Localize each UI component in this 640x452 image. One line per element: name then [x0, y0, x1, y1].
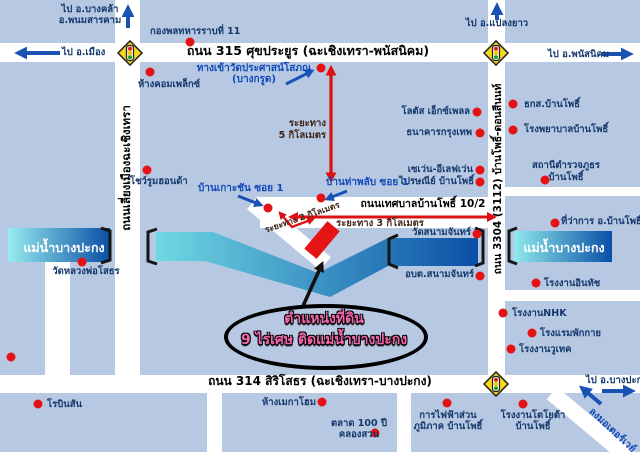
- poi-dot-road314-west: [7, 353, 16, 362]
- poi-megahome: ห้างเมกาโฮม: [258, 397, 316, 408]
- arrow-thaphlap: [327, 191, 347, 199]
- map-canvas: ไป อ.บางคล้า อ.พนมสารคาม ไป อ.เมือง กองพ…: [0, 0, 640, 452]
- poi-dot-seven: [476, 166, 485, 175]
- poi-dot-district: [551, 219, 560, 228]
- direction-bangkhla: ไป อ.บางคล้า อ.พนมสารคาม: [58, 4, 122, 26]
- poi-dot-hospital: [509, 126, 518, 135]
- poi-robinson: โรบินสัน: [47, 399, 82, 410]
- road-label-bypass: ถนนเลี่ยงเมืองฉะเชิงเทรา: [118, 48, 136, 288]
- poi-dot-watsanamchan: [473, 230, 482, 239]
- arrow-callout-pointer: [303, 264, 322, 306]
- direction-mueang: ไป อ.เมือง: [62, 47, 105, 58]
- poi-dot-honda: [143, 166, 152, 175]
- poi-dot-hotel: [528, 329, 537, 338]
- traffic-light-icon: [484, 372, 508, 396]
- poi-sao-sanamchan: อบต.สนามจันทร์: [394, 269, 474, 280]
- poi-dot-robinson: [34, 400, 43, 409]
- lane-thaphlap: บ้านท่าพลับ ซอย 1: [326, 177, 409, 188]
- arrow-motorway: [582, 388, 601, 404]
- distance-5km: ระยะทาง 5 กิโลเมตร: [268, 118, 326, 142]
- poi-intouch: โรงงานอินทัช: [544, 278, 600, 289]
- poi-hotel: โรงแรมพักกาย: [540, 328, 601, 339]
- poi-dot-complex: [146, 68, 155, 77]
- poi-dot-post: [476, 178, 485, 187]
- direction-phanatnikhom: ไป อ.พนัสนิคม: [548, 49, 609, 60]
- lane-kochan: บ้านเกาะชัน ซอย 1: [198, 183, 283, 194]
- poi-toyota: โรงงานโตโยต้า บ้านโพธิ์: [498, 410, 568, 432]
- poi-hospital: โรงพยาบาลบ้านโพธิ์: [524, 124, 608, 135]
- poi-infantry: กองพลทหารราบที่ 11: [150, 26, 236, 37]
- poi-wat-sothon: วัดหลวงพ่อโสธร: [50, 266, 122, 277]
- poi-dot-toyota: [519, 400, 528, 409]
- poi-dot-kochan: [264, 204, 273, 213]
- road-label-3304: ถนน 3304 (3112) บ้านโพธิ์-ดอนสีนนท์: [489, 79, 505, 279]
- poi-dot-pea: [443, 399, 452, 408]
- poi-dot-bkkbank: [476, 129, 485, 138]
- poi-bkkbank: ธนาคารกรุงเทพ: [372, 127, 472, 138]
- poi-dot-lotus: [473, 108, 482, 117]
- poi-dot-baac: [509, 100, 518, 109]
- poi-complex: ห้างคอมเพล็กซ์: [138, 79, 200, 90]
- land-callout-line1: ตำแหน่งที่ดิน: [244, 308, 404, 330]
- lane-wat-entrance: ทางเข้าวัดประศาสน์โสภณ (บางกรูด): [190, 63, 318, 85]
- poi-police: สถานีตำรวจภูธร บ้านโพธิ์: [522, 160, 610, 184]
- land-callout-line2: 9 ไร่เศษ ติดแม่น้ำบางปะกง: [224, 329, 424, 351]
- direction-bangpakong: ไป อ.บางปะกง: [586, 375, 640, 386]
- poi-nhk: โรงงานNHK: [512, 308, 567, 319]
- arrow-kochan: [238, 196, 261, 205]
- poi-market: ตลาด 100 ปี คลองสวน: [330, 418, 388, 440]
- poi-wat-sanamchan: วัดสนามจันทร์: [391, 227, 471, 238]
- traffic-light-icon: [484, 41, 508, 65]
- poi-pea: การไฟฟ้าส่วน ภูมิภาค บ้านโพธิ์: [413, 410, 483, 432]
- poi-dot-intouch: [532, 279, 541, 288]
- direction-plaengyao: ไป อ.แปลงยาว: [460, 18, 534, 29]
- poi-lotus: โลตัส เอ็กซ์เพลล: [380, 106, 470, 117]
- road-label-315: ถนน 315 ศุขประยูร (ฉะเชิงเทรา-พนัสนิคม): [158, 45, 458, 56]
- road-label-314: ถนน 314 สิริโสธร (ฉะเชิงเทรา-บางปะกง): [170, 376, 470, 387]
- poi-dot-wutech: [507, 345, 516, 354]
- poi-seven: เซเว่น-อีเลฟเว่น: [373, 164, 473, 175]
- poi-dot-sao: [476, 272, 485, 281]
- poi-baac: ธกส.บ้านโพธิ์: [524, 99, 580, 110]
- poi-wutech: โรงงานวูเทค: [519, 344, 572, 355]
- poi-dot-thaphlap: [317, 194, 326, 203]
- poi-dot-megahome: [318, 398, 327, 407]
- poi-honda: โชว์รูมฮอนด้า: [130, 176, 188, 187]
- road-label-municipal: ถนนเทศบาลบ้านโพธิ์ 10/2: [348, 199, 498, 210]
- poi-dot-nhk: [499, 309, 508, 318]
- poi-district-office: ที่ว่าการ อ.บ้านโพธิ์: [561, 216, 640, 227]
